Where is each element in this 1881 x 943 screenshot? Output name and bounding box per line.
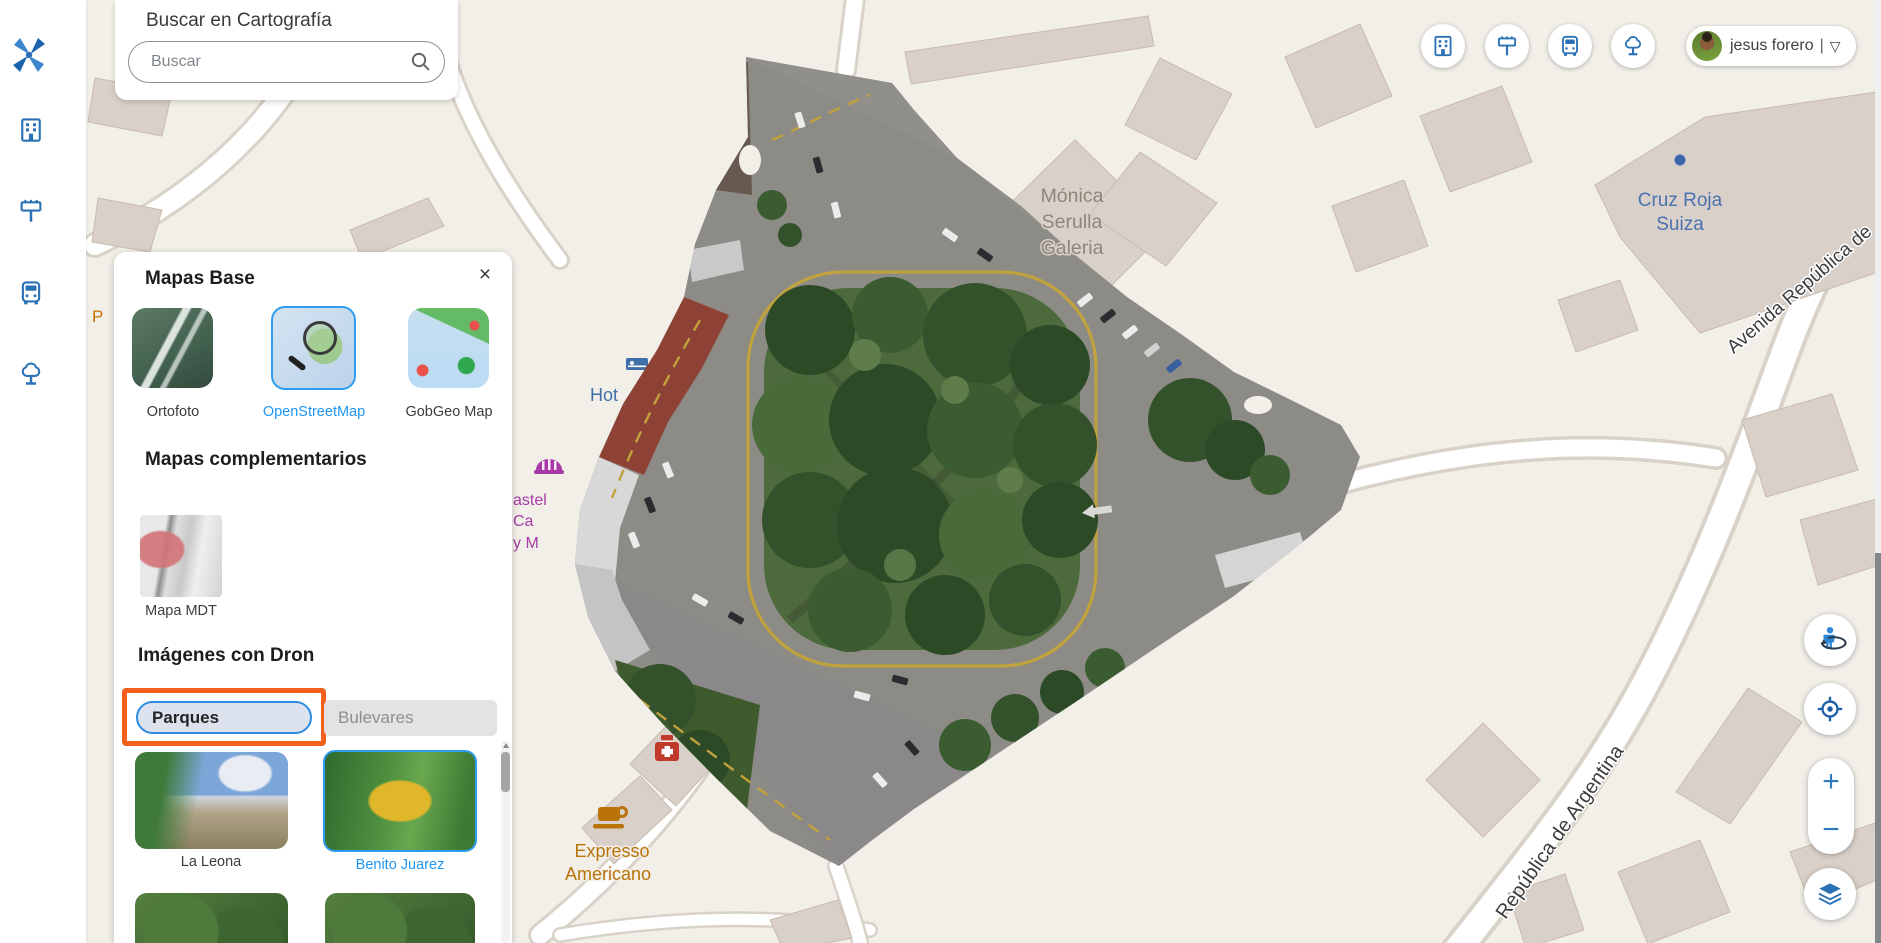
red-cross-label-line2: Suiza bbox=[1656, 214, 1704, 235]
panel-scrollbar-thumb[interactable] bbox=[501, 752, 510, 792]
drone-image-la-leona-thumb[interactable] bbox=[135, 752, 288, 849]
sidebar-item-billboards[interactable] bbox=[16, 196, 46, 226]
panel-title: Mapas Base bbox=[145, 268, 255, 290]
bakery-label-line2: Ca bbox=[513, 513, 534, 530]
billboard-icon bbox=[16, 196, 46, 226]
user-name: jesus forero bbox=[1730, 37, 1814, 55]
bus-icon bbox=[1557, 33, 1583, 59]
tab-bulevares[interactable]: Bulevares bbox=[324, 700, 497, 736]
street-view-icon bbox=[1813, 623, 1847, 657]
topbar-parks-button[interactable] bbox=[1611, 24, 1655, 68]
gallery-label-line2: Serulla bbox=[1042, 211, 1103, 233]
red-cross-label-line1: Cruz Roja bbox=[1638, 190, 1723, 211]
locate-me-button[interactable] bbox=[1804, 683, 1856, 735]
layers-icon bbox=[1814, 878, 1846, 910]
user-menu[interactable]: jesus forero | ▽ bbox=[1686, 26, 1856, 66]
search-icon[interactable] bbox=[409, 50, 433, 74]
mdt-map-label[interactable]: Mapa MDT bbox=[119, 603, 243, 619]
tab-bulevares-label: Bulevares bbox=[338, 708, 414, 728]
drone-image-benito-juarez-label[interactable]: Benito Juarez bbox=[335, 857, 465, 873]
sidebar-item-buildings[interactable] bbox=[16, 115, 46, 145]
search-input[interactable] bbox=[128, 41, 445, 83]
basemap-ortofoto-thumb[interactable] bbox=[132, 308, 213, 388]
locate-icon bbox=[1814, 693, 1846, 725]
billboard-icon bbox=[1494, 33, 1520, 59]
basemap-openstreetmap-thumb[interactable] bbox=[271, 306, 356, 390]
street-view-button[interactable] bbox=[1804, 614, 1856, 666]
bakery-label-line3: y M bbox=[513, 535, 539, 552]
panel-scroll-up-arrow[interactable] bbox=[503, 743, 509, 748]
building-icon bbox=[16, 115, 46, 145]
app-logo[interactable] bbox=[11, 36, 47, 74]
zoom-out-button[interactable]: − bbox=[1808, 806, 1854, 854]
drone-image-thumb-partial-1[interactable] bbox=[135, 893, 288, 943]
base-maps-panel: Mapas Base × Ortofoto OpenStreetMap GobG… bbox=[114, 252, 512, 943]
tree-icon bbox=[16, 359, 46, 389]
sidebar bbox=[0, 0, 86, 943]
user-divider: | bbox=[1820, 37, 1824, 55]
hotel-bed-icon bbox=[626, 358, 648, 370]
cafe-label-line2: Americano bbox=[565, 864, 651, 884]
red-cross-poi-dot bbox=[1675, 155, 1686, 166]
drone-images-title: Imágenes con Dron bbox=[138, 645, 314, 667]
sidebar-item-parks[interactable] bbox=[16, 359, 46, 389]
chevron-down-icon[interactable]: ▽ bbox=[1830, 38, 1841, 55]
bus-icon bbox=[16, 278, 46, 308]
basemap-ortofoto-label[interactable]: Ortofoto bbox=[114, 404, 235, 420]
search-card: Buscar en Cartografía bbox=[115, 0, 458, 100]
complementary-maps-title: Mapas complementarios bbox=[145, 449, 367, 471]
basemap-gobgeo-thumb[interactable] bbox=[408, 308, 489, 388]
close-icon[interactable]: × bbox=[470, 260, 500, 290]
topbar-transit-button[interactable] bbox=[1548, 24, 1592, 68]
zoom-control: + − bbox=[1808, 758, 1854, 854]
search-title: Buscar en Cartografía bbox=[146, 10, 332, 32]
hotel-label: Hot bbox=[590, 385, 618, 405]
basemap-openstreetmap-label[interactable]: OpenStreetMap bbox=[252, 404, 376, 420]
topbar-billboards-button[interactable] bbox=[1485, 24, 1529, 68]
bakery-label-line1: astel bbox=[513, 492, 547, 509]
gallery-label-line3: Galeria bbox=[1041, 237, 1104, 259]
topbar-buildings-button[interactable] bbox=[1421, 24, 1465, 68]
sidebar-item-transit[interactable] bbox=[16, 278, 46, 308]
drone-image-thumb-partial-2[interactable] bbox=[325, 893, 475, 943]
app-root: Hot astel Ca y M bbox=[0, 0, 1881, 943]
basemap-gobgeo-label[interactable]: GobGeo Map bbox=[387, 404, 511, 420]
zoom-in-button[interactable]: + bbox=[1808, 758, 1854, 806]
cafe-label-line1: Expresso bbox=[574, 841, 649, 861]
mdt-map-thumb[interactable] bbox=[140, 515, 222, 597]
tab-parques[interactable]: Parques bbox=[136, 701, 312, 734]
gallery-label-line1: Mónica bbox=[1041, 185, 1104, 207]
layers-button[interactable] bbox=[1804, 868, 1856, 920]
drone-image-benito-juarez-thumb[interactable] bbox=[323, 750, 477, 852]
building-icon bbox=[1430, 33, 1456, 59]
tab-parques-label: Parques bbox=[152, 708, 219, 728]
drone-image-la-leona-label[interactable]: La Leona bbox=[146, 854, 276, 870]
p-street-fragment: P bbox=[92, 307, 103, 326]
avatar bbox=[1692, 31, 1722, 61]
tree-icon bbox=[1620, 33, 1646, 59]
page-scrollbar-thumb[interactable] bbox=[1875, 553, 1881, 943]
